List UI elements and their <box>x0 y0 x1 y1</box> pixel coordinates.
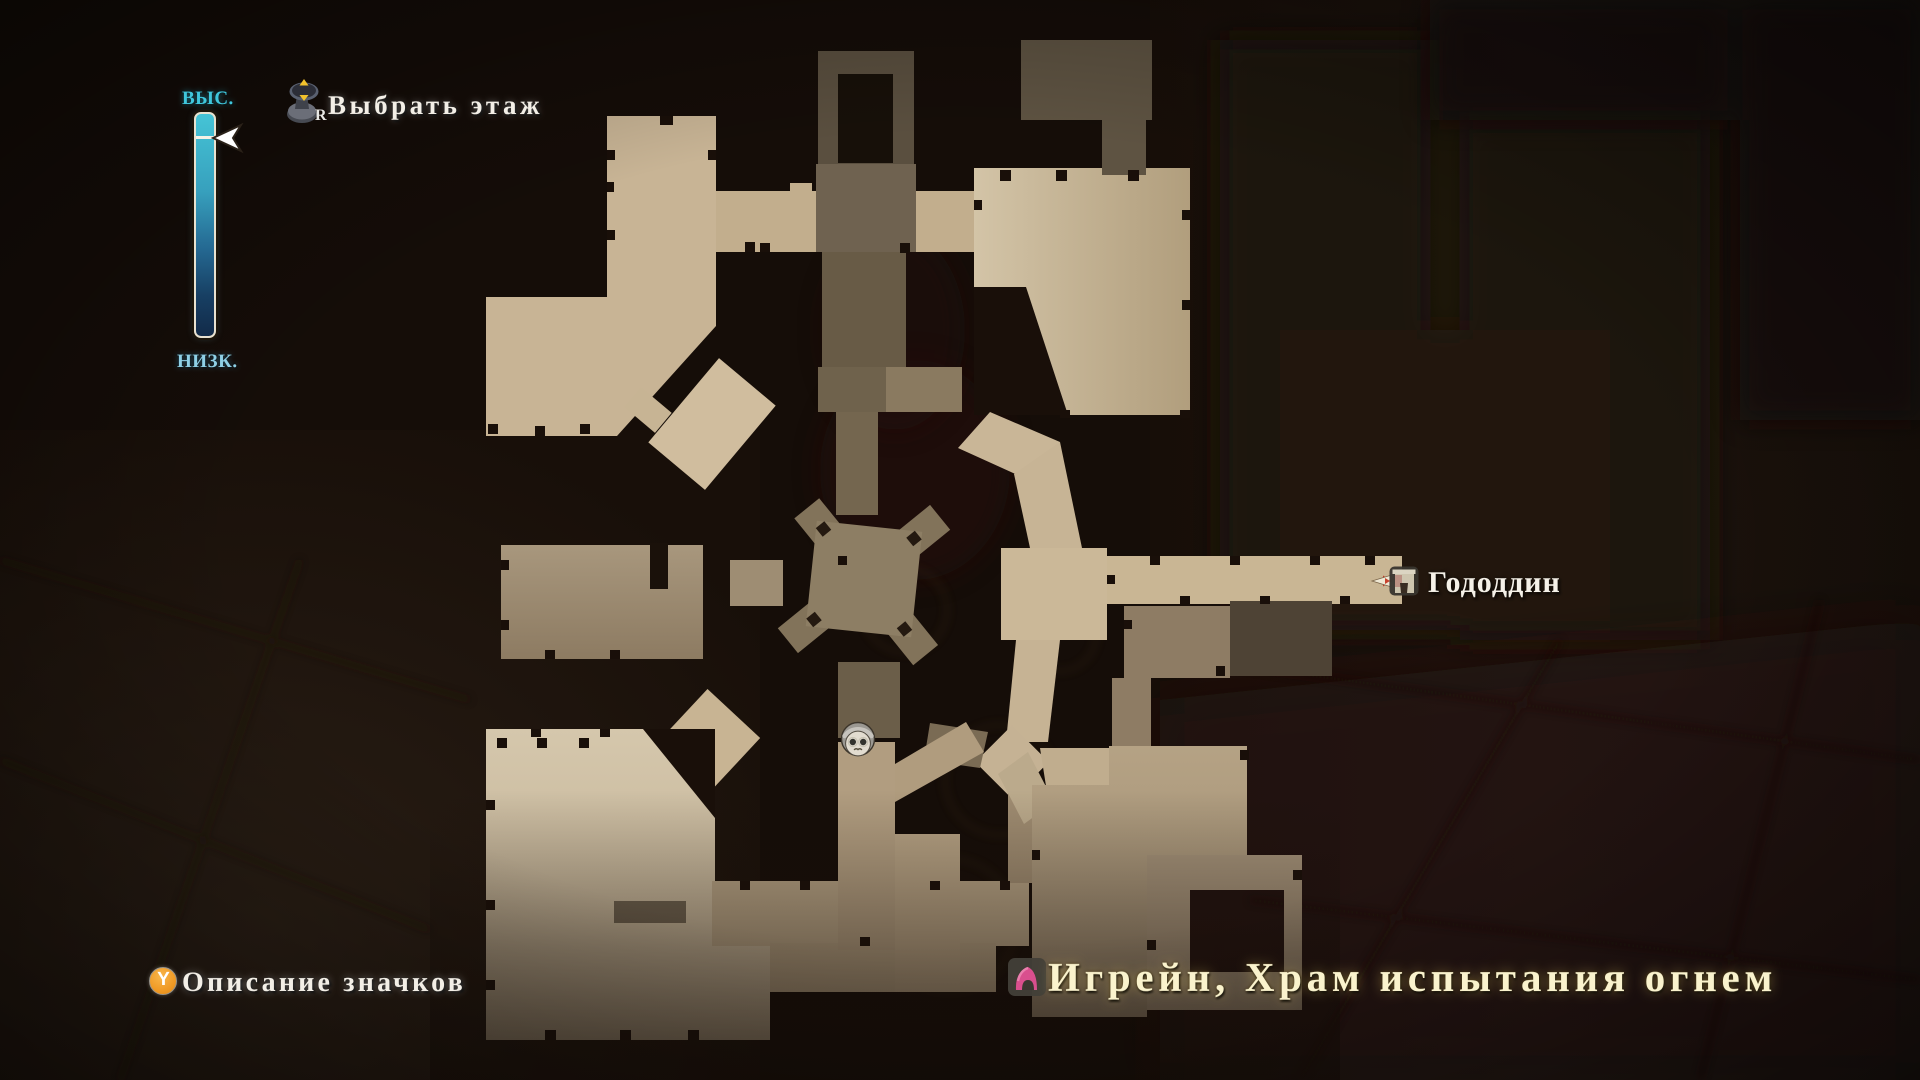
svg-text:R: R <box>315 107 327 124</box>
